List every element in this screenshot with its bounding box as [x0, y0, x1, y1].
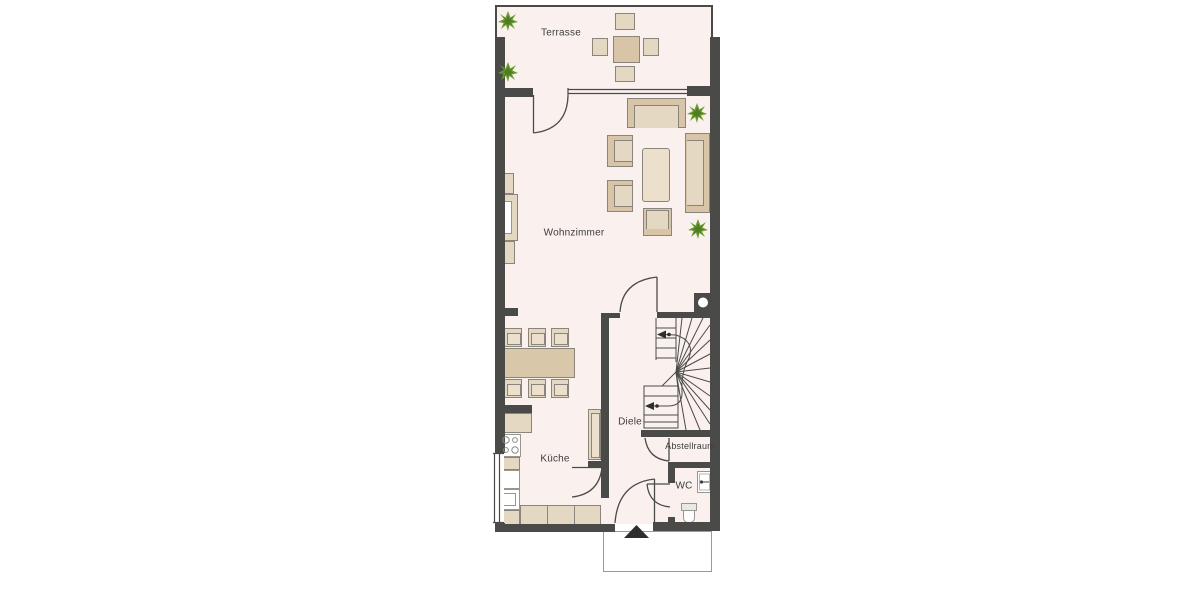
room-label-abstellraum: Abstellraum	[665, 441, 715, 451]
stair-direction-arrows	[645, 331, 671, 411]
room-label-terrasse: Terrasse	[541, 28, 581, 39]
floorplan-canvas: Terrasse Wohnzimmer Küche Diele Abstellr…	[0, 0, 1200, 600]
entrance-door	[615, 479, 655, 523]
staircase	[644, 318, 710, 430]
wc-door	[647, 484, 670, 507]
chimney-flue	[698, 298, 708, 308]
room-label-wc: WC	[675, 481, 692, 492]
kitchen-window	[492, 453, 504, 523]
plant-terrace-2	[498, 62, 518, 82]
terrace-window	[568, 88, 687, 96]
terrace-outline	[496, 6, 712, 90]
washbasin-detail	[700, 474, 710, 490]
plant-terrace-1	[498, 11, 518, 31]
plant-living-2	[688, 219, 708, 239]
stove-burners	[503, 437, 518, 453]
linework-overlay	[0, 0, 1200, 600]
plant-living-1	[687, 103, 707, 123]
diele-door	[620, 277, 657, 312]
room-label-kueche: Küche	[540, 454, 569, 465]
room-label-diele: Diele	[618, 417, 642, 428]
kitchen-door	[572, 468, 602, 498]
room-label-wohnzimmer: Wohnzimmer	[544, 228, 605, 239]
terrace-door	[534, 95, 569, 133]
entrance-arrow	[624, 525, 649, 538]
